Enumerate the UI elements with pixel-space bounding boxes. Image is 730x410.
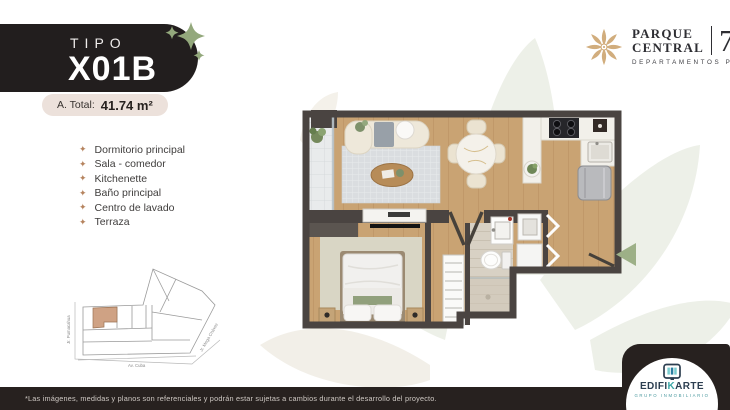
disclaimer-bar: *Las imágenes, medidas y planos son refe… <box>0 387 730 410</box>
developer-logo-box: EDIFIKARTE GRUPO INMOBILIARIO <box>622 344 730 410</box>
coffee-maker <box>593 119 607 132</box>
toilet <box>481 251 511 269</box>
kitchen-sink <box>588 142 612 162</box>
highlighted-unit <box>93 307 117 328</box>
tipo-label: TIPO <box>70 35 127 51</box>
developer-logo-circle: EDIFIKARTE GRUPO INMOBILIARIO <box>626 358 718 410</box>
tv-screen <box>370 224 420 228</box>
bed-runner <box>353 296 392 305</box>
brand-logo: PARQUE CENTRAL 722 DEPARTAMENTOS PRIME <box>584 26 730 68</box>
brand-divider <box>711 26 712 55</box>
list-item: ✦ Terraza <box>79 216 185 229</box>
feature-list: ✦ Dormitorio principal ✦ Sala - comedor … <box>79 143 185 230</box>
list-item: ✦ Kitchenette <box>79 172 185 185</box>
brand-name-line1: PARQUE <box>632 27 704 41</box>
brand-number: 722 <box>719 26 730 55</box>
cooktop <box>549 118 579 138</box>
bed <box>340 251 405 327</box>
red-accent <box>508 217 512 221</box>
disclaimer-text: *Las imágenes, medidas y planos son refe… <box>25 394 437 403</box>
diamond-bullet-icon: ✦ <box>79 158 87 171</box>
mandala-icon <box>584 26 624 68</box>
counter-plant <box>524 161 540 177</box>
street-label-bottom: Av. Cuba <box>128 363 146 368</box>
coffee-table <box>371 164 413 187</box>
list-item: ✦ Dormitorio principal <box>79 143 185 156</box>
brand-name-line2: CENTRAL <box>632 41 704 55</box>
developer-tagline: GRUPO INMOBILIARIO <box>634 393 709 398</box>
area-value: 41.74 m² <box>101 98 153 113</box>
brand-tagline: DEPARTAMENTOS PRIME <box>632 59 730 66</box>
pillow <box>344 305 371 321</box>
area-label: A. Total: <box>57 99 95 111</box>
diamond-bullet-icon: ✦ <box>79 216 87 229</box>
developer-name: EDIFIKARTE <box>640 381 704 392</box>
diamond-bullet-icon: ✦ <box>79 143 87 156</box>
unit-code: X01B <box>68 50 157 89</box>
pillow <box>374 305 401 321</box>
sparkle-icon <box>158 14 216 66</box>
brochure-page: TIPO X01B A. Total: 41.74 m² ✦ Dormitori… <box>0 0 730 410</box>
bedroom-closet <box>308 223 358 237</box>
street-label-right: Jr. Mega Chávez <box>199 322 219 352</box>
diamond-bullet-icon: ✦ <box>79 172 87 185</box>
list-item: ✦ Baño principal <box>79 187 185 200</box>
diamond-bullet-icon: ✦ <box>79 187 87 200</box>
building-icon <box>662 363 682 381</box>
side-table <box>396 121 414 139</box>
floor-plan <box>298 96 646 348</box>
refrigerator <box>578 166 611 200</box>
list-item: ✦ Centro de lavado <box>79 201 185 214</box>
diamond-bullet-icon: ✦ <box>79 201 87 214</box>
list-item: ✦ Sala - comedor <box>79 158 185 171</box>
site-plan: Jr. Pumacahua Av. Cuba Jr. Mega Chávez <box>56 260 240 378</box>
street-label-left: Jr. Pumacahua <box>66 315 71 344</box>
shower-area <box>470 278 513 315</box>
total-area-badge: A. Total: 41.74 m² <box>42 94 168 116</box>
lamp <box>324 312 329 317</box>
bathroom-vanity <box>491 217 513 244</box>
lamp <box>412 312 417 317</box>
tv-console <box>363 209 426 228</box>
